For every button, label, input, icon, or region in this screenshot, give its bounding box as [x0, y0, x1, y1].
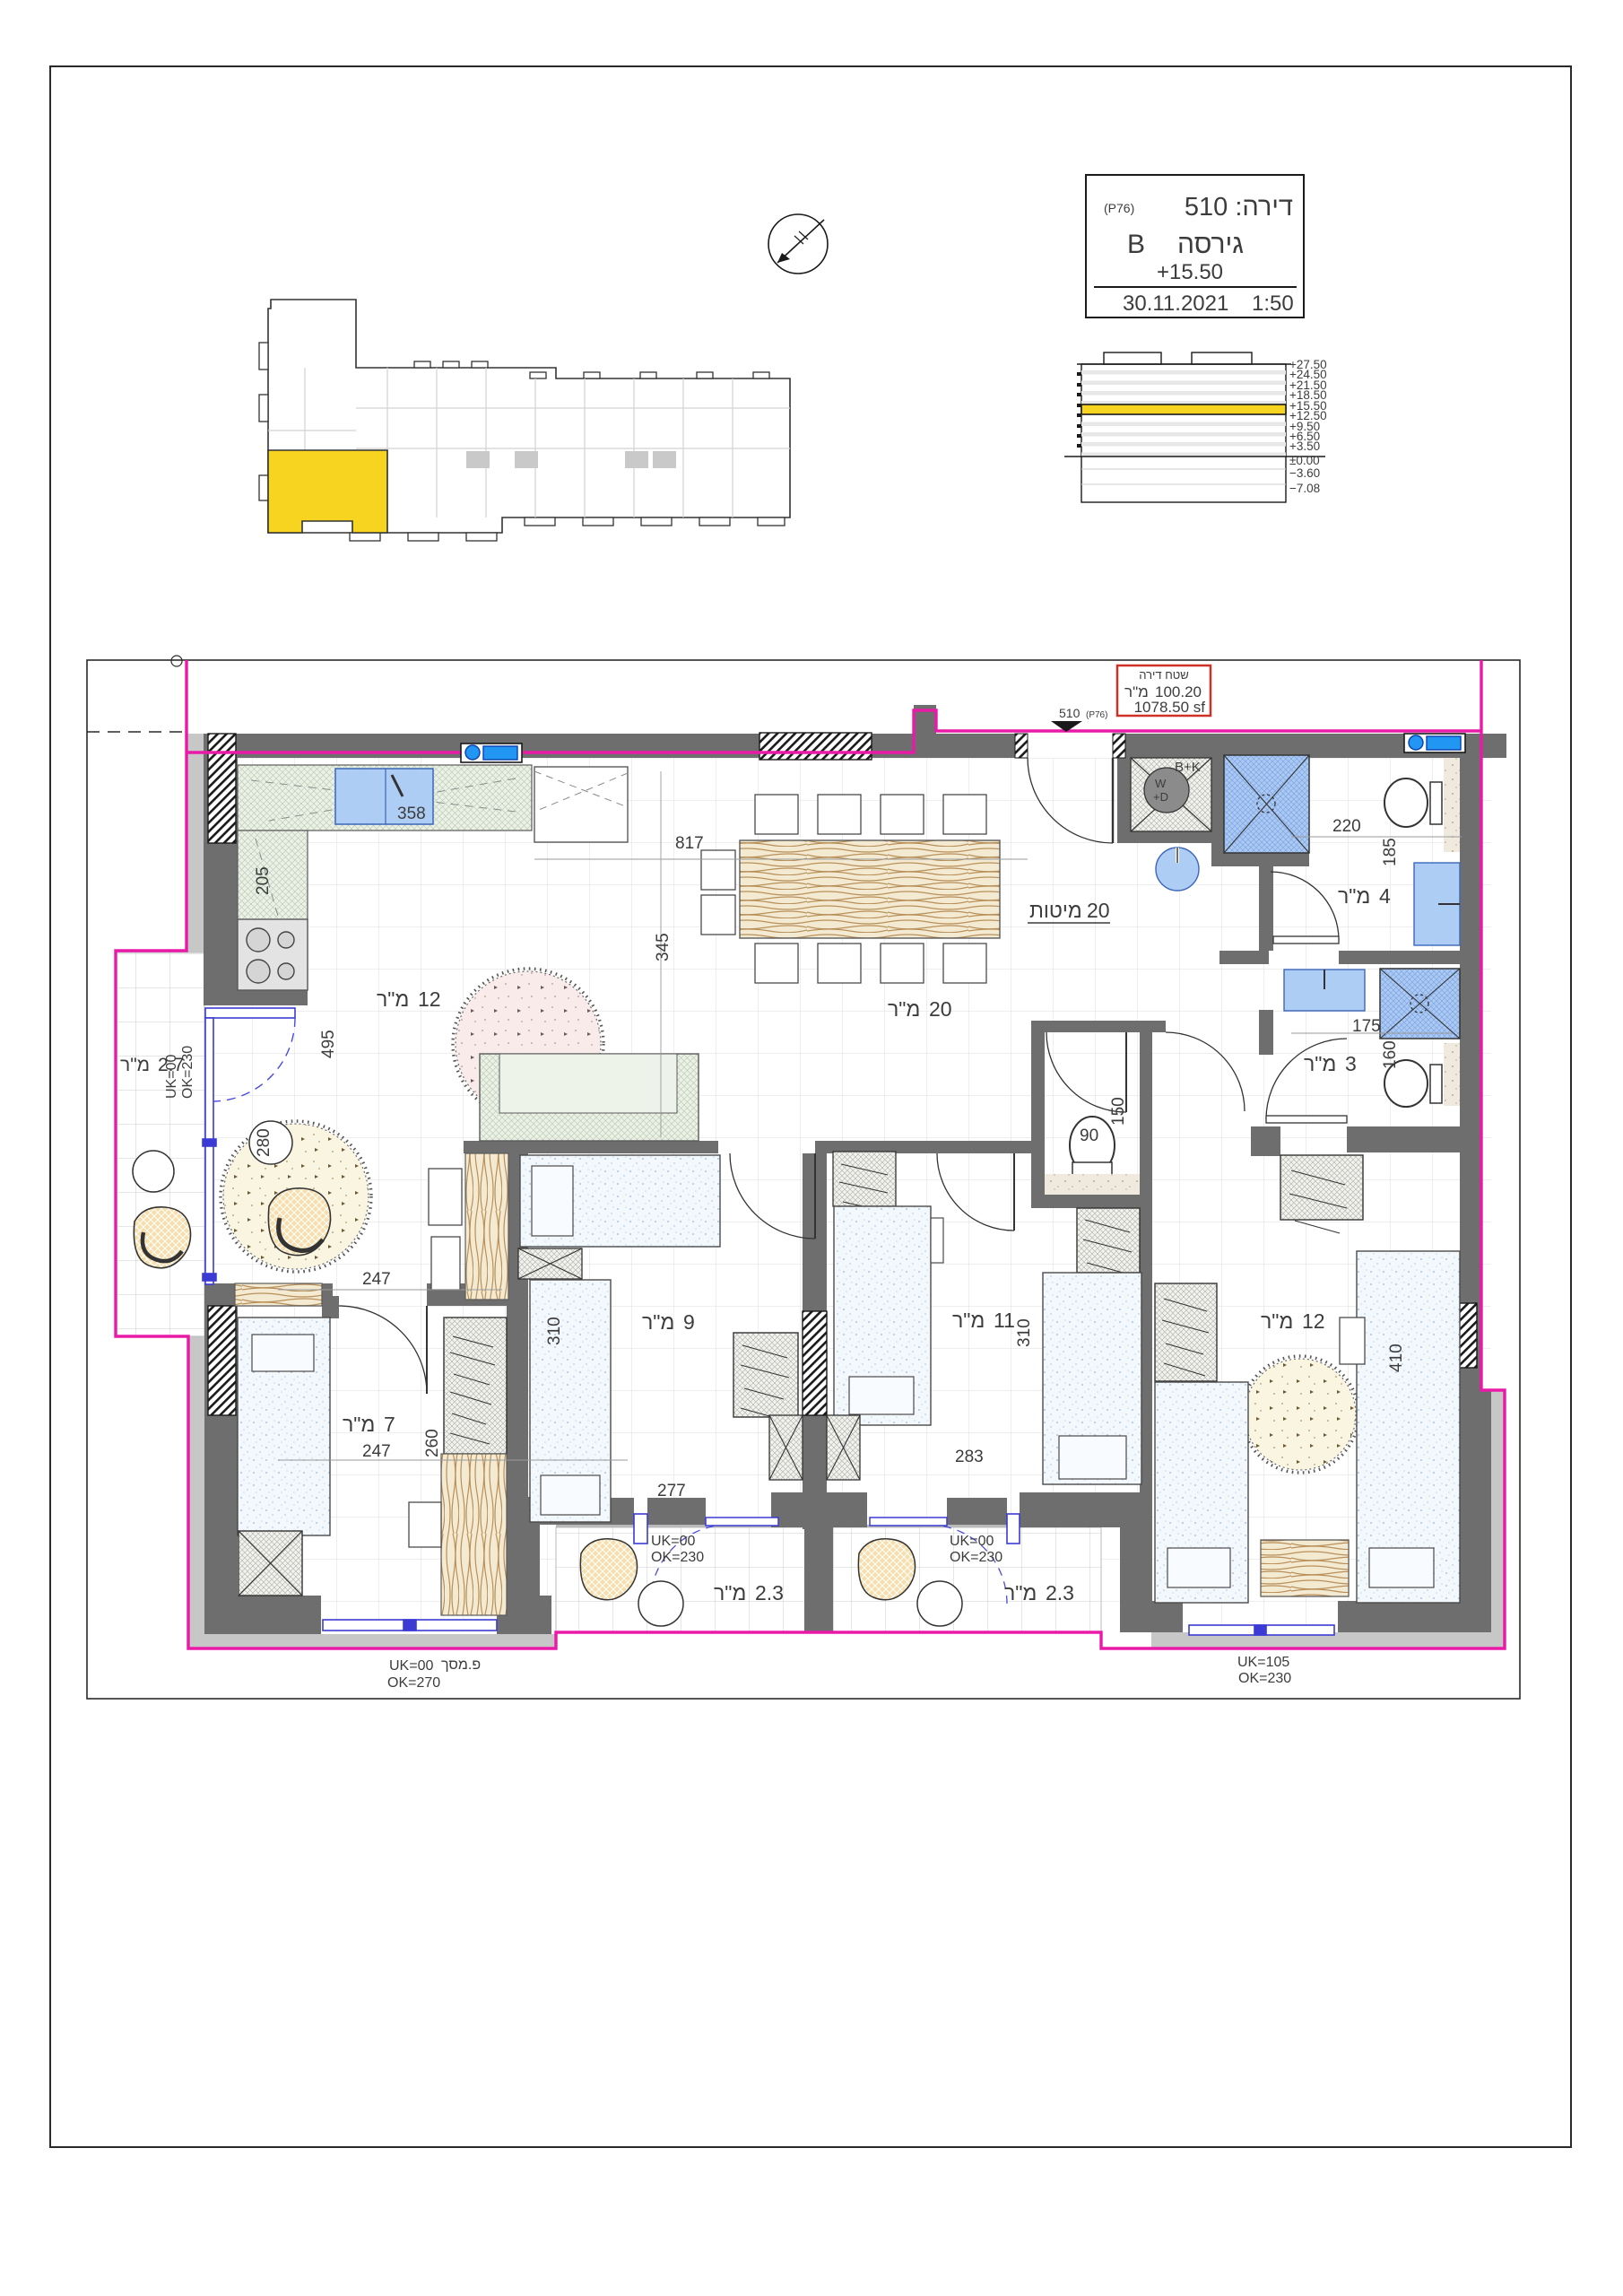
svg-text:+3.50: +3.50: [1289, 439, 1320, 453]
svg-text:UK=00: UK=00: [651, 1534, 695, 1549]
svg-text:פ.מסך: פ.מסך: [441, 1657, 481, 1673]
svg-text:495: 495: [319, 1030, 338, 1058]
svg-text:260: 260: [423, 1429, 442, 1457]
svg-text:(P76): (P76): [1104, 201, 1134, 215]
svg-text:410: 410: [1387, 1344, 1406, 1372]
svg-text:W: W: [1155, 777, 1167, 790]
svg-text:UK=00: UK=00: [950, 1534, 994, 1549]
svg-text:OK=230: OK=230: [651, 1550, 704, 1565]
svg-text:מ"ר: מ"ר: [1338, 884, 1370, 908]
svg-text:20: 20: [929, 997, 952, 1021]
svg-text:30.11.2021: 30.11.2021: [1123, 291, 1228, 316]
svg-text:±0.00: ±0.00: [1289, 454, 1320, 467]
svg-text:247: 247: [362, 1442, 391, 1461]
svg-text:283: 283: [955, 1448, 984, 1466]
svg-text:מ"ר: מ"ר: [343, 1413, 375, 1436]
svg-text:12: 12: [418, 987, 441, 1011]
svg-text:מ"ר: מ"ר: [888, 997, 920, 1021]
svg-text:דירה: 510: דירה: 510: [1185, 193, 1293, 222]
svg-text:160: 160: [1381, 1040, 1400, 1069]
svg-text:מ"ר: מ"ר: [377, 987, 409, 1011]
svg-text:−7.08: −7.08: [1289, 482, 1320, 495]
svg-text:7: 7: [384, 1413, 395, 1436]
svg-text:4: 4: [1379, 884, 1391, 908]
svg-text:90: 90: [1080, 1126, 1098, 1145]
svg-text:OK=230: OK=230: [180, 1046, 195, 1099]
svg-text:OK=270: OK=270: [387, 1675, 440, 1691]
svg-text:280: 280: [255, 1128, 273, 1157]
svg-text:מ"ר: מ"ר: [1304, 1052, 1336, 1075]
svg-text:−3.60: −3.60: [1289, 466, 1320, 480]
svg-text:220: 220: [1332, 817, 1361, 836]
svg-text:UK=00: UK=00: [164, 1055, 179, 1099]
svg-text:358: 358: [397, 804, 426, 823]
svg-text:277: 277: [657, 1482, 686, 1500]
svg-text:B: B: [1127, 230, 1145, 259]
svg-text:20: 20: [1087, 899, 1110, 922]
svg-text:1078.50 sf: 1078.50 sf: [1134, 699, 1206, 716]
svg-text:+D: +D: [1153, 790, 1168, 804]
svg-text:UK=00: UK=00: [389, 1658, 433, 1674]
svg-text:2.3: 2.3: [755, 1581, 784, 1605]
svg-text:310: 310: [1015, 1318, 1034, 1347]
svg-text:9: 9: [683, 1310, 695, 1334]
svg-text:185: 185: [1381, 838, 1400, 866]
svg-text:150: 150: [1109, 1097, 1128, 1126]
svg-text:+15.50: +15.50: [1157, 260, 1223, 284]
svg-text:OK=230: OK=230: [950, 1550, 1002, 1565]
svg-text:345: 345: [654, 933, 673, 961]
svg-text:מ"ר: מ"ר: [120, 1055, 150, 1075]
svg-text:מ"ר: מ"ר: [642, 1310, 674, 1334]
svg-text:310: 310: [545, 1317, 564, 1345]
svg-text:(P76): (P76): [1086, 710, 1107, 720]
svg-text:175: 175: [1352, 1017, 1381, 1036]
svg-text:B+K: B+K: [1175, 760, 1201, 775]
svg-text:3: 3: [1345, 1052, 1357, 1075]
svg-text:510: 510: [1059, 706, 1081, 720]
svg-text:2.3: 2.3: [1046, 1581, 1074, 1605]
svg-text:מ"ר: מ"ר: [1004, 1581, 1037, 1605]
svg-text:מ"ר: מ"ר: [714, 1581, 746, 1605]
svg-text:11: 11: [994, 1309, 1015, 1332]
svg-text:מ"ר: מ"ר: [1261, 1309, 1293, 1333]
svg-text:גירסה: גירסה: [1177, 230, 1244, 259]
svg-text:שטח דירה: שטח דירה: [1139, 668, 1189, 682]
svg-text:817: 817: [675, 834, 704, 853]
svg-text:מ"ר: מ"ר: [952, 1309, 985, 1332]
svg-text:247: 247: [362, 1270, 391, 1289]
svg-text:205: 205: [254, 866, 273, 895]
svg-text:UK=105: UK=105: [1237, 1655, 1289, 1670]
svg-text:מיטות: מיטות: [1029, 899, 1082, 922]
svg-text:12: 12: [1302, 1309, 1325, 1333]
svg-text:OK=230: OK=230: [1238, 1671, 1291, 1686]
svg-text:1:50: 1:50: [1252, 291, 1294, 316]
